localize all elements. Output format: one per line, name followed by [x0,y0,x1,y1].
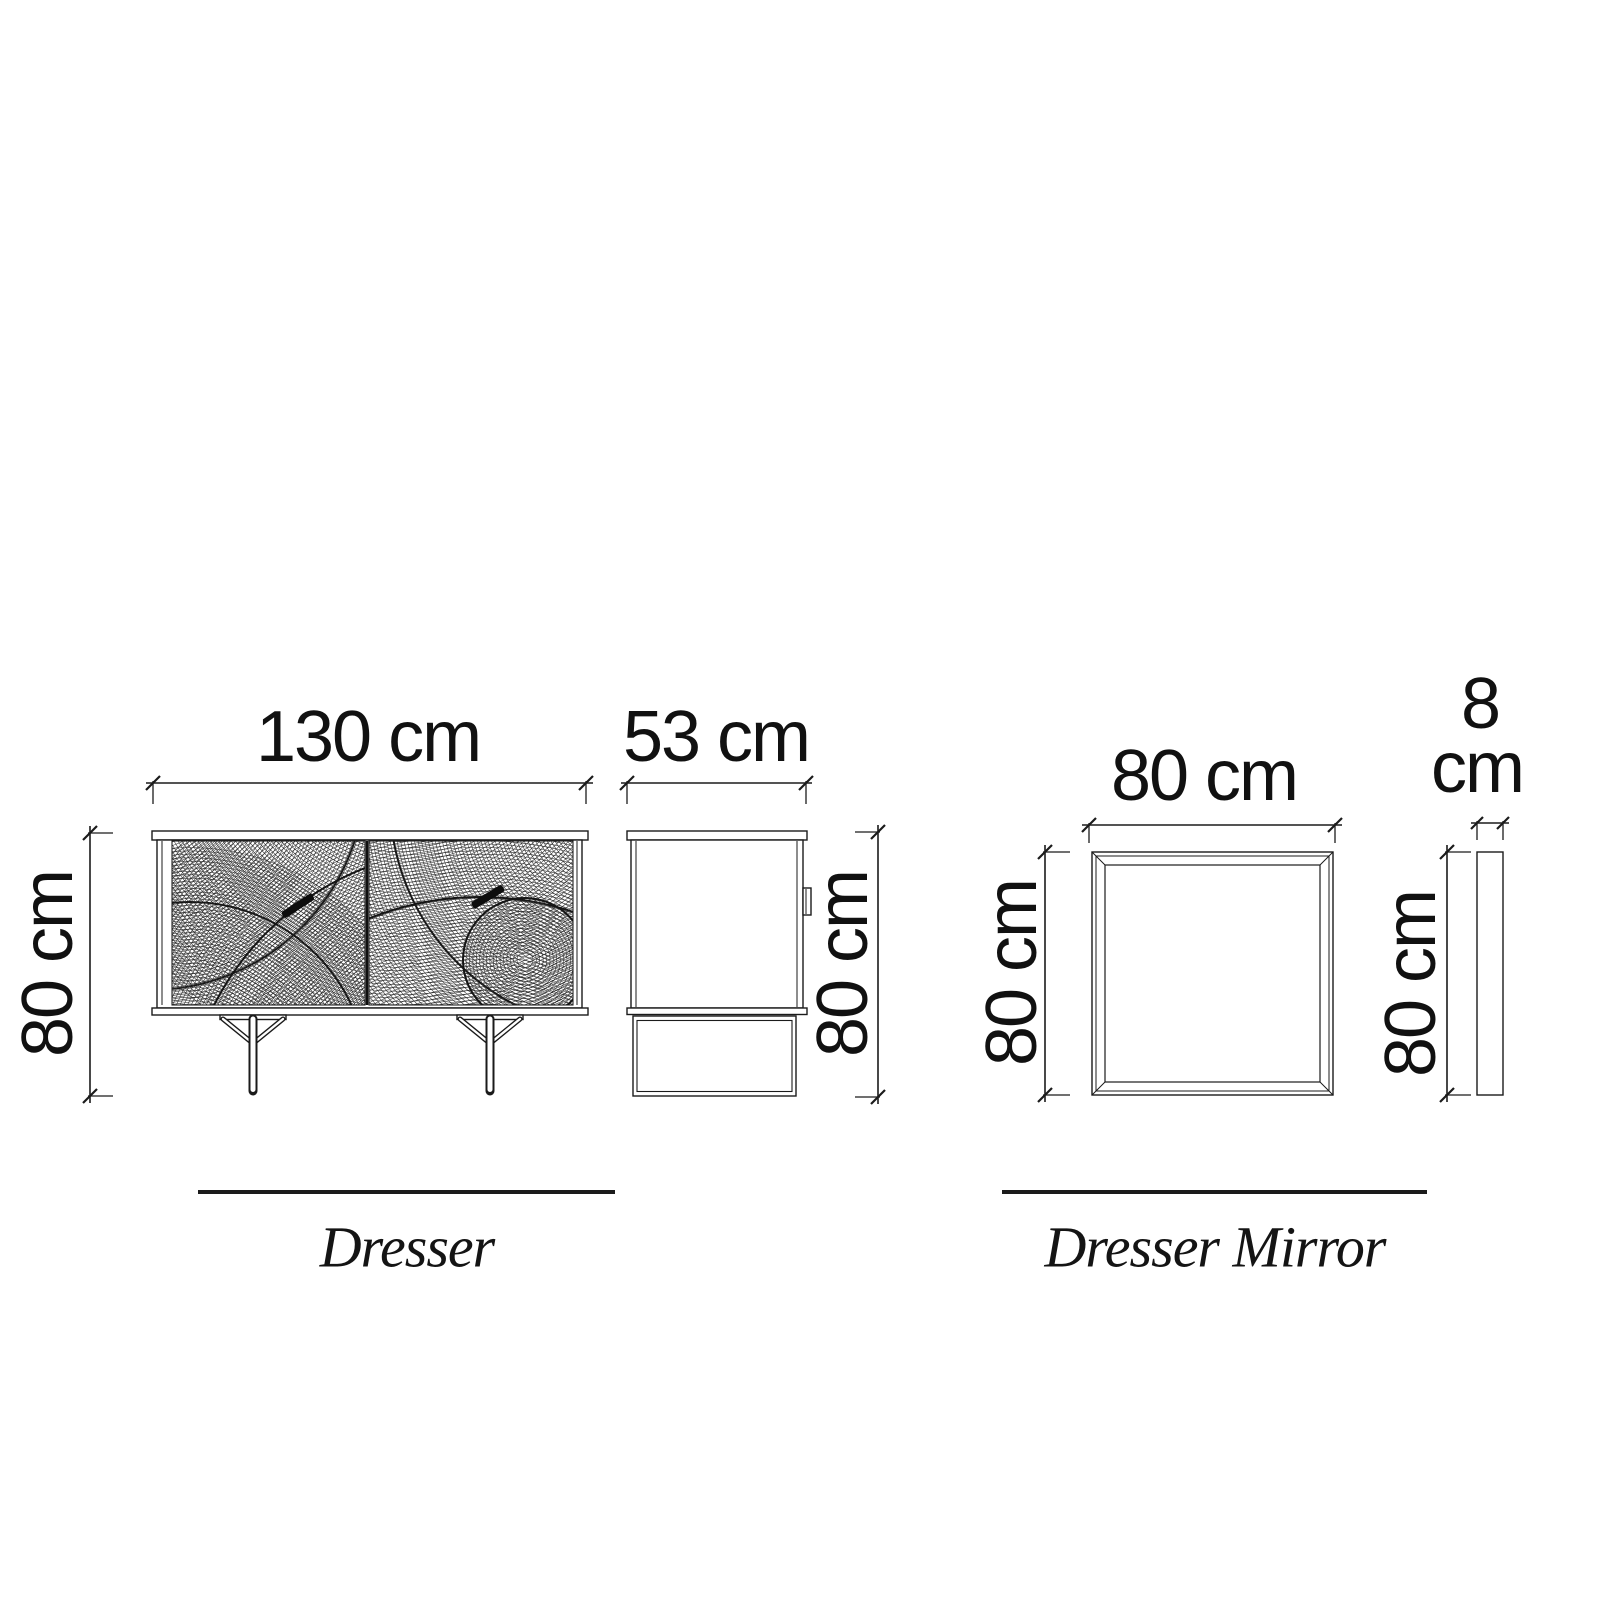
dresser-caption-label: Dresser [319,1215,496,1280]
dresser-side-top-board [627,831,807,840]
dresser-bottom-board [152,1008,588,1015]
dresser-side-leg-frame-outer [633,1016,796,1096]
mirror-thickness-unit-label: cm [1431,728,1523,808]
dresser-height-label-front: 80 cm [8,871,88,1057]
mirror-height-label-front: 80 cm [972,880,1052,1066]
mirror-side-profile [1477,852,1503,1095]
dresser-side-view [627,831,811,1096]
furniture-dimension-diagram: 130 cm 53 cm 80 cm 80 cm Dresser [0,0,1600,1600]
mirror-caption-label: Dresser Mirror [1044,1215,1387,1280]
mirror-side-view [1477,852,1503,1095]
canvas-background [0,0,1600,1600]
mirror-front-view [1092,852,1333,1095]
dresser-width-label: 130 cm [256,697,480,777]
mirror-height-label-side: 80 cm [1371,891,1451,1077]
mirror-width-label: 80 cm [1111,736,1297,816]
dresser-top-board [152,831,588,840]
dresser-height-label-side: 80 cm [803,871,883,1057]
dresser-depth-label: 53 cm [623,697,809,777]
mirror-glass [1105,865,1320,1082]
dresser-side-body [631,840,803,1008]
dresser-side-bottom-board [627,1008,807,1015]
